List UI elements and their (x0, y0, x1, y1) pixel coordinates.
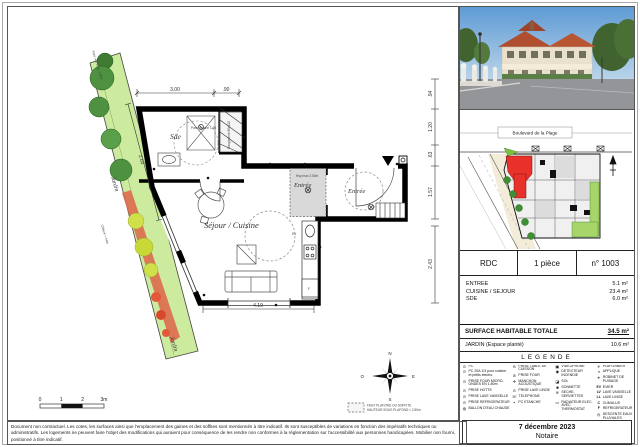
dim-right-5: 2.43 (428, 259, 434, 269)
legend-item: ⊙PRISE LAVE VAISSELLE (462, 395, 510, 399)
legend-item: ≋SECHE-SERVIETTES (555, 391, 594, 399)
legend-item: ⊙PRISE FOUR MICRO-ONDES EN 1.80m (462, 380, 510, 388)
surface-row: SDE 6.0 m² (466, 296, 628, 304)
abbr-ev: EV (596, 386, 601, 389)
surface-value: 6.0 m² (612, 296, 628, 304)
legend-item: ■SONNETTE (555, 386, 594, 390)
dim-right-2: 1.20 (428, 122, 434, 132)
compass-north-label: N (388, 351, 391, 356)
legend-item: ✳PLAFONNIER (596, 365, 634, 369)
legend-item: ⌖ROBINET DE PUISAGE (596, 376, 634, 384)
dim-right-4: 1.57 (428, 187, 434, 197)
room-label-entree-ext: Entrée (347, 188, 365, 195)
waterproof-socket-icon: ▪ (512, 401, 517, 405)
note-cloture: Clôture + haie (100, 224, 110, 244)
surface-label: ENTREE (466, 281, 488, 289)
scale-bar: 0 1 2 3m (39, 397, 108, 408)
site-plan: Boulevard de la Plage (460, 109, 634, 250)
entrance-opening (354, 161, 398, 171)
cooktop (304, 245, 316, 259)
surface-label: CUISINE / SEJOUR (466, 289, 515, 297)
legend-item: ◑APPLIQUE (596, 370, 634, 374)
fridge (302, 279, 318, 297)
ceiling-note-1: FAUX PLAFOND OU SOFFITE (367, 404, 411, 408)
note-pare-douche: Pare douche 1.60 (191, 126, 216, 130)
surface-list: ENTREE 5.1 m² CUISINE / SEJOUR 23.4 m² S… (460, 275, 634, 324)
washer-socket-icon: ⊙ (512, 389, 517, 393)
ceiling-light-icon: ✳ (596, 365, 601, 369)
total-surface-row: SURFACE HABITABLE TOTALE 34.5 m² (460, 324, 634, 338)
scale-label-2: 2 (81, 397, 84, 403)
doorbell-icon: ■ (555, 386, 560, 390)
legend-item: CCUMULUS (596, 402, 634, 406)
surface-row: ENTREE 5.1 m² (466, 281, 628, 289)
kitchen-sockets-icon: ⊙ (462, 370, 467, 374)
legend-item: ⊙PC (462, 365, 510, 369)
note-hsp: Hsp max 2.50m (296, 174, 319, 178)
legend-column-2: ⊖PRISE TABLE DE CUISSON ⊘PRISE FOUR ✛MAN… (512, 365, 555, 420)
dim-right-3: .63 (428, 151, 434, 158)
legend-item: ▣VIDEOPHONE (555, 365, 594, 369)
street-label: Boulevard de la Plage (513, 131, 558, 136)
legend-item: ✛MANCHON ACOUSTIQUE (512, 380, 553, 388)
boundary-markers (532, 146, 604, 151)
legend-grid: ⊙PC ⊙PC 20A 1/3 pour cuisine et petits é… (460, 362, 634, 420)
abbr-c: C (596, 402, 601, 405)
dim-right-1: .94 (428, 90, 434, 97)
document-date: 7 décembre 2023 (519, 423, 575, 432)
floor-finish-icon: ◪ (555, 380, 560, 384)
garden-surface-value: 10.6 m² (611, 342, 629, 348)
room-label-entree-int: Entrée (293, 182, 311, 189)
legend-item: ◎DESCENTE EAUX PLUVIALES (596, 413, 634, 420)
legend-item: ⊙PC 20A 1/3 pour cuisine et petits élect… (462, 370, 510, 378)
compass-east-label: E (412, 374, 415, 379)
disclaimer-note: Document non contractuel. Les cotes, les… (7, 421, 467, 445)
stairs (376, 203, 405, 218)
scale-label-0: 0 (39, 397, 42, 403)
surface-label: SDE (466, 296, 477, 304)
kitchen-counter (302, 221, 318, 299)
north-arrow (610, 156, 616, 176)
hood-socket-icon: ⊙ (462, 389, 467, 393)
legend-title: LEGENDE (460, 351, 634, 362)
rainwater-downpipe-icon: ◎ (596, 413, 601, 417)
hedge (502, 74, 592, 79)
meter-box (399, 156, 407, 164)
surface-value: 23.4 m² (609, 289, 628, 297)
ceiling-height-legend: FAUX PLAFOND OU SOFFITE HAUTEUR SOUS PLA… (348, 403, 421, 412)
abbr-lv: LV (596, 391, 601, 394)
oven-socket-icon: ⊘ (512, 374, 517, 378)
garden-surface-label: JARDIN (Espace planté) (465, 342, 524, 348)
scale-label-3: 3m (101, 397, 108, 403)
legend-item: ⊖PRISE TABLE DE CUISSON (512, 365, 553, 373)
wall-light-icon: ◑ (596, 370, 601, 374)
power-socket-icon: ⊙ (462, 365, 467, 369)
unit-level: RDC (460, 251, 518, 275)
legend-column-3: ▣VIDEOPHONE ◉DETECTEUR INCENDIE ◪SOL ■SO… (555, 365, 596, 420)
note-rangement: Rangement 60x120 (227, 121, 231, 149)
unit-type: 1 pièce (518, 251, 576, 275)
total-surface-label: SURFACE HABITABLE TOTALE (465, 328, 557, 335)
surface-row: CUISINE / SEJOUR 23.4 m² (466, 289, 628, 297)
radiator-icon: ▭ (555, 401, 560, 405)
legend-item: LLLAVE LINGE (596, 396, 634, 400)
legend-item: ⊙PRISE REFRIGERATEUR (462, 401, 510, 405)
legend-item: ▭RADIATEUR ELEC. AVEC THERMOSTAT (555, 401, 594, 412)
room-label-sejour: Séjour / Cuisine (204, 220, 259, 230)
dim-top-1: 3.00 (170, 87, 180, 93)
legend-item: LVLAVE VAISSELLE (596, 391, 634, 395)
acoustic-sleeve-icon: ✛ (512, 380, 517, 384)
phone-socket-icon: ☏ (512, 395, 517, 399)
legend-item: ⊙PRISE LAVE LINGE (512, 389, 553, 393)
videophone-icon: ▣ (555, 365, 560, 369)
garden-surface-row: JARDIN (Espace planté) 10.6 m² (460, 338, 634, 351)
legend-item: ◍BALLON D'EAU CHAUDE (462, 407, 510, 411)
kitchen-sink (306, 225, 315, 237)
title-block: 7 décembre 2023 Notaire (462, 420, 632, 445)
legend-item: FREFRIGERATEUR (596, 407, 634, 411)
legend-column-1: ⊙PC ⊙PC 20A 1/3 pour cuisine et petits é… (462, 365, 512, 420)
total-surface-value: 34.5 m² (608, 328, 629, 335)
plan-sheet: 3.00 .90 .94 1.20 .63 1.57 2.43 4.19 2.0… (0, 0, 640, 447)
hob-socket-icon: ⊖ (512, 365, 517, 369)
abbr-f: F (596, 407, 601, 410)
unit-number: n° 1003 (577, 251, 634, 275)
room-label-sde: Sde (170, 132, 182, 141)
dim-top-2: .90 (223, 87, 230, 93)
building-photo (460, 7, 634, 109)
legend-item: ▪PC ETANCHE (512, 401, 553, 405)
legend-item: EVEVIER (596, 386, 634, 390)
legend-column-4: ✳PLAFONNIER ◑APPLIQUE ⌖ROBINET DE PUISAG… (596, 365, 634, 420)
label-f: F (308, 287, 310, 291)
document-recipient: Notaire (536, 432, 559, 441)
microwave-socket-icon: ⊙ (462, 380, 467, 384)
legend-item: ☏TELEPHONE (512, 395, 553, 399)
info-panel: Boulevard de la Plage RDC 1 pièce n° 100… (459, 6, 635, 444)
towel-dryer-icon: ≋ (555, 391, 560, 395)
compass-south-label: S (388, 397, 391, 402)
legend-item: ◪SOL (555, 380, 594, 384)
water-heater-icon: ◍ (462, 407, 467, 411)
scale-label-1: 1 (60, 397, 63, 403)
smoke-detector-icon: ◉ (555, 370, 560, 374)
compass-rose: N S E O (360, 351, 415, 402)
abbr-ll: LL (596, 396, 601, 399)
ceiling-swatch (348, 403, 364, 412)
ceiling-note-2: HAUTEUR SOUS PLAFOND < 2.50m (367, 408, 421, 412)
bathroom-sink (158, 153, 180, 166)
legend-item: ⊘PRISE FOUR (512, 374, 553, 378)
storage-closet (220, 108, 242, 152)
fridge-socket-icon: ⊙ (462, 401, 467, 405)
dim-bottom: 4.19 (253, 303, 263, 309)
floor-plan-panel: 3.00 .90 .94 1.20 .63 1.57 2.43 4.19 2.0… (7, 6, 459, 421)
unit-identity-row: RDC 1 pièce n° 1003 (460, 250, 634, 275)
floor-plan-drawing: 3.00 .90 .94 1.20 .63 1.57 2.43 4.19 2.0… (8, 7, 458, 420)
outdoor-tap-icon: ⌖ (596, 376, 601, 380)
dishwasher-socket-icon: ⊙ (462, 395, 467, 399)
legend-item: ⊙PRISE HOTTE (462, 389, 510, 393)
compass-west-label: O (360, 374, 364, 379)
legend-item: ◉DETECTEUR INCENDIE (555, 370, 594, 378)
surface-value: 5.1 m² (612, 281, 628, 289)
